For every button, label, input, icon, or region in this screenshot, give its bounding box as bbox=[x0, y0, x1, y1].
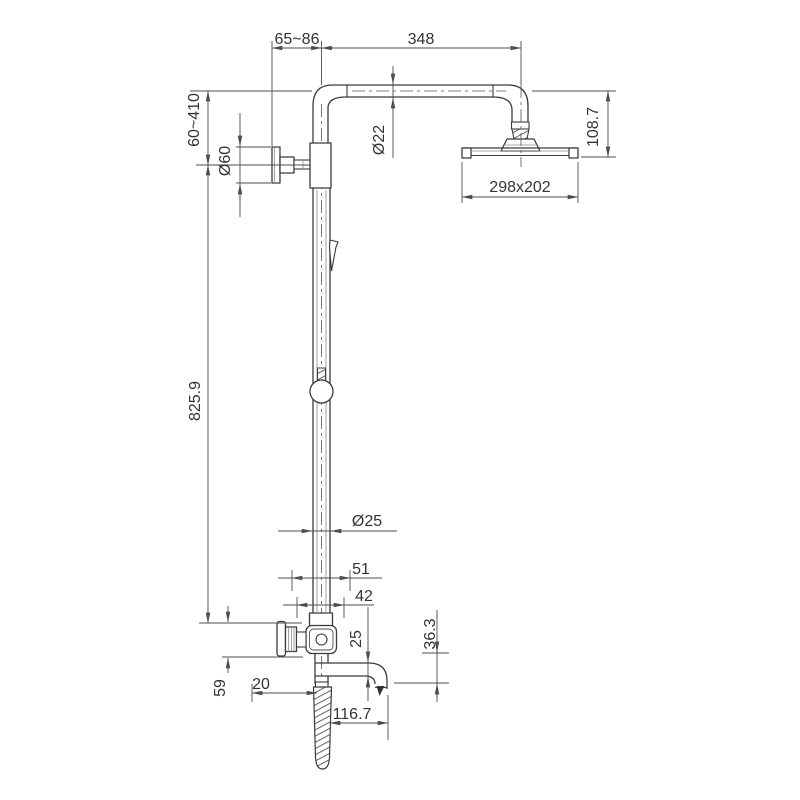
dim-label-valve-height: 59 bbox=[212, 679, 229, 697]
wall-bracket bbox=[272, 143, 331, 188]
dimension-spout-diameter: 25 bbox=[348, 607, 368, 701]
dim-label-flange-diameter: Ø60 bbox=[217, 146, 234, 176]
dim-label-bracket-height: 60~410 bbox=[186, 93, 203, 147]
dimension-head-drop: 108.7 bbox=[532, 91, 616, 157]
valve-knob-cap bbox=[277, 622, 286, 657]
dim-label-width-51: 51 bbox=[352, 561, 370, 578]
dim-label-head-size: 298x202 bbox=[489, 179, 550, 196]
dim-label-hose-offset: 20 bbox=[252, 676, 270, 693]
dimension-hose-offset: 20 bbox=[252, 676, 317, 702]
dim-label-arm-length: 348 bbox=[408, 31, 435, 48]
dimension-head-size: 298x202 bbox=[462, 162, 578, 203]
dim-label-head-drop: 108.7 bbox=[585, 107, 602, 147]
shower-system-drawing: 65~86 348 60~410 Ø60 Ø22 108.7 bbox=[0, 0, 800, 800]
shower-head-ball-joint bbox=[501, 122, 540, 151]
dim-label-riser-diameter: Ø25 bbox=[352, 513, 382, 530]
dim-label-arm-pipe-diameter: Ø22 bbox=[371, 125, 388, 155]
dim-label-spout-reach: 116.7 bbox=[333, 706, 372, 723]
mixer-valve bbox=[277, 613, 337, 684]
dim-label-width-42: 42 bbox=[355, 588, 373, 605]
dimension-arm-length: 348 bbox=[322, 31, 522, 167]
dimension-bracket-height: 60~410 bbox=[186, 91, 312, 165]
handshower-holder-hook bbox=[330, 240, 339, 271]
dim-label-spout-drop: 36.3 bbox=[422, 618, 439, 649]
technical-drawing-canvas: 65~86 348 60~410 Ø60 Ø22 108.7 bbox=[0, 0, 800, 800]
dimension-riser-length: 825.9 bbox=[187, 165, 302, 623]
dimension-riser-diameter: Ø25 bbox=[278, 513, 397, 531]
valve-knob-knurl bbox=[286, 627, 297, 652]
dimension-top-offset: 65~86 bbox=[272, 31, 322, 146]
dim-label-top-offset: 65~86 bbox=[275, 31, 320, 48]
hand-shower-hose bbox=[314, 682, 332, 769]
dimension-arm-pipe-diameter: Ø22 bbox=[371, 66, 393, 158]
shower-arm bbox=[313, 85, 528, 143]
dimension-spout-drop: 36.3 bbox=[394, 610, 449, 702]
spout-outlet-nozzle bbox=[377, 686, 385, 696]
dim-label-riser-length: 825.9 bbox=[187, 381, 204, 421]
dim-label-spout-diameter: 25 bbox=[348, 630, 365, 648]
dimension-spout-reach: 116.7 bbox=[330, 695, 388, 740]
